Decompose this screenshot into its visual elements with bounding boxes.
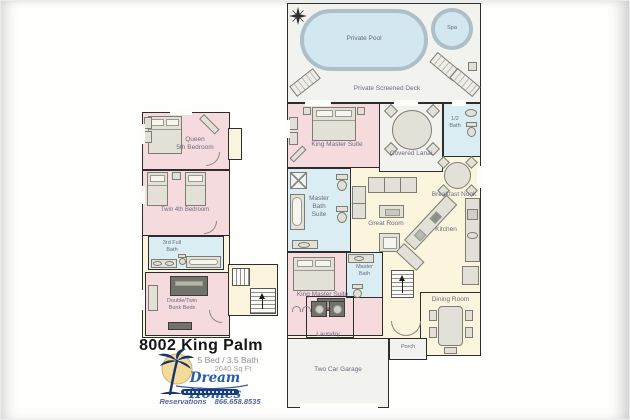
stove bbox=[467, 209, 478, 220]
pillow bbox=[166, 119, 179, 126]
deck-side-table bbox=[468, 62, 477, 71]
bunk-mattress bbox=[175, 281, 203, 286]
island-sink bbox=[414, 229, 427, 242]
vanity-sink bbox=[298, 242, 310, 248]
pillow bbox=[335, 110, 352, 117]
stairs-upper-run bbox=[232, 268, 250, 286]
toilet-bowl bbox=[467, 127, 476, 137]
master-bath-suite-label: Master Bath Suite bbox=[297, 195, 341, 219]
kitchen-label: Kitchen bbox=[426, 226, 466, 234]
pillow bbox=[316, 110, 333, 117]
window-opening bbox=[452, 100, 466, 106]
full-bath-label: 3rd Full Bath bbox=[154, 240, 190, 254]
window-opening bbox=[170, 110, 192, 115]
nook-table bbox=[444, 162, 471, 189]
window-opening bbox=[305, 100, 331, 106]
dining-room-label: Dining Room bbox=[421, 296, 480, 304]
dining-chair bbox=[429, 310, 437, 321]
shower bbox=[290, 172, 307, 189]
stairs-arrow-stem bbox=[262, 299, 264, 309]
property-name: 8002 King Palm bbox=[112, 337, 290, 355]
pillow bbox=[297, 260, 313, 267]
toilet-bowl bbox=[337, 180, 347, 191]
stairs-arrow-stem bbox=[402, 281, 404, 293]
dining-chair bbox=[465, 310, 473, 321]
dresser bbox=[144, 131, 152, 143]
slider-opening bbox=[394, 100, 418, 106]
dining-chair bbox=[465, 327, 473, 338]
dining-table bbox=[438, 306, 463, 346]
dresser bbox=[289, 117, 298, 130]
vanity-sink bbox=[153, 261, 162, 266]
refrigerator bbox=[462, 266, 479, 285]
washer bbox=[311, 301, 327, 317]
patio-table bbox=[392, 110, 432, 150]
window-opening bbox=[285, 120, 290, 138]
window-opening bbox=[140, 290, 145, 310]
twin-bed bbox=[147, 172, 168, 206]
spa-label: Spa bbox=[437, 25, 467, 32]
closet-bifold-door bbox=[292, 306, 301, 312]
window-opening bbox=[140, 124, 145, 144]
king-master-1-label: King Master Suite bbox=[297, 141, 377, 149]
king-bed bbox=[312, 107, 356, 141]
twin-bed bbox=[185, 172, 206, 206]
pool-label: Private Pool bbox=[329, 35, 399, 43]
bed-cover-line bbox=[294, 270, 334, 271]
closet-bifold-door bbox=[302, 306, 311, 312]
bed-cover-line bbox=[148, 185, 167, 186]
pillow bbox=[188, 175, 203, 182]
pillow bbox=[151, 119, 164, 126]
laundry-label: Laundry bbox=[301, 331, 355, 339]
floor-plan-canvas: Private Pool Spa Private Screened Deck K… bbox=[0, 0, 630, 420]
garage-label: Two Car Garage bbox=[287, 366, 389, 374]
island-cooktop bbox=[429, 211, 442, 224]
bunk-room-label: Double/Twin Bunk Beds bbox=[150, 298, 214, 312]
porch-label: Porch bbox=[389, 344, 427, 351]
armchair-cushion bbox=[383, 237, 397, 249]
vanity-sink bbox=[354, 256, 364, 261]
bathroom-sink bbox=[465, 109, 477, 117]
bunk-bed bbox=[170, 276, 208, 296]
window-opening bbox=[477, 166, 483, 188]
pillow bbox=[150, 175, 165, 182]
washer-door bbox=[315, 305, 324, 314]
half-bath-label: 1/2 Bath bbox=[444, 116, 466, 130]
tv-stand bbox=[168, 322, 192, 330]
bed-cover-line bbox=[186, 185, 205, 186]
dining-chair bbox=[429, 327, 437, 338]
king-master-2-label: King Master Suite bbox=[285, 291, 360, 299]
sofa bbox=[368, 177, 417, 193]
nightstand bbox=[303, 107, 311, 115]
vanity-sink bbox=[165, 261, 174, 266]
window-opening bbox=[140, 186, 145, 204]
bathtub-basin bbox=[189, 259, 218, 265]
master-bath-2-label: Master Bath bbox=[348, 264, 381, 278]
stairs-lower-run bbox=[250, 288, 276, 314]
kitchen-counter bbox=[465, 198, 480, 262]
toilet-bowl bbox=[179, 258, 186, 265]
king-bed bbox=[293, 257, 335, 291]
nightstand bbox=[172, 172, 181, 180]
garage-door-opening bbox=[300, 403, 378, 408]
loveseat bbox=[352, 186, 366, 219]
website-bar bbox=[181, 389, 239, 395]
dining-chair bbox=[444, 347, 457, 354]
twin-bedroom-label: Twin 4th Bedroom bbox=[142, 207, 228, 215]
covered-lanai-label: Covered Lanai bbox=[381, 150, 441, 158]
great-room-label: Great Room bbox=[357, 220, 415, 228]
closet-bump bbox=[228, 128, 242, 160]
website-bar-text-dashes bbox=[184, 391, 236, 393]
dryer-door bbox=[333, 305, 342, 314]
bathtub bbox=[186, 256, 221, 268]
reservations-text: Reservations 866.658.8535 bbox=[135, 397, 285, 406]
tv-screen bbox=[385, 209, 400, 216]
kitchen-sink bbox=[467, 232, 478, 239]
queen-bedroom-label: Queen 5th Bedroom bbox=[162, 136, 228, 152]
deck-label: Private Screened Deck bbox=[317, 85, 457, 93]
bed-cover-line bbox=[313, 120, 355, 121]
tv-console bbox=[379, 205, 404, 218]
bed-cover-line bbox=[149, 129, 181, 130]
dresser bbox=[144, 117, 152, 129]
breakfast-nook-label: Breakfast Nook bbox=[428, 191, 480, 199]
nightstand bbox=[357, 107, 365, 115]
dryer bbox=[329, 301, 345, 317]
compass-icon bbox=[289, 7, 307, 25]
pillow bbox=[315, 260, 331, 267]
